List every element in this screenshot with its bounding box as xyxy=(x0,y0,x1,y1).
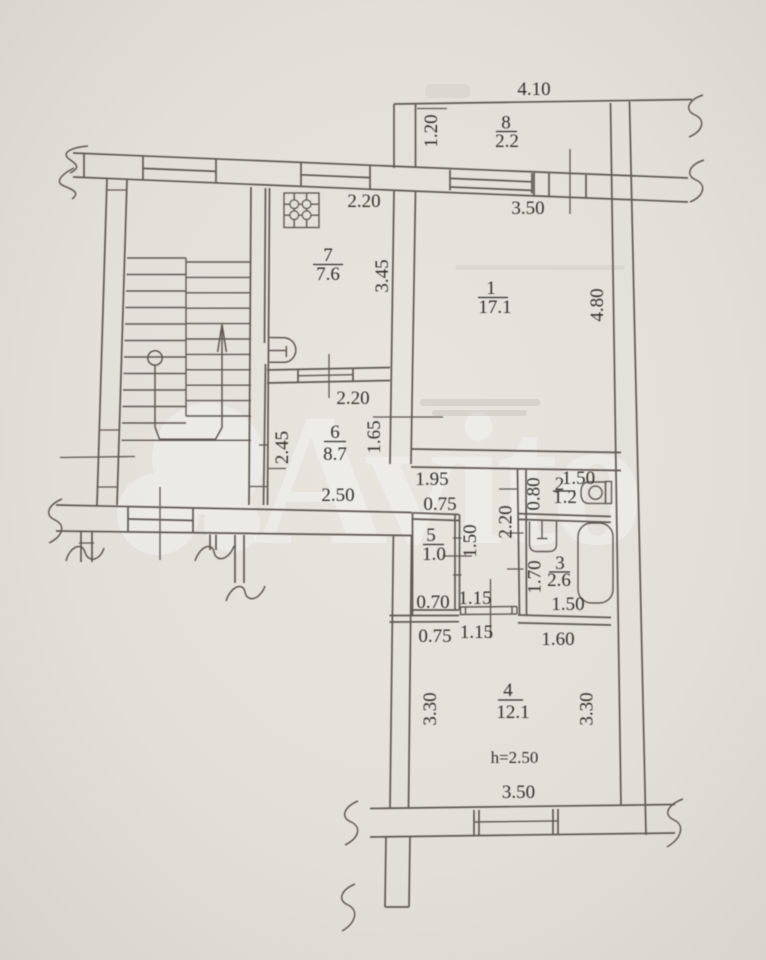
svg-text:7: 7 xyxy=(323,245,333,266)
svg-text:0.75: 0.75 xyxy=(423,494,456,515)
svg-text:1.50: 1.50 xyxy=(460,524,481,557)
svg-text:3.45: 3.45 xyxy=(372,259,393,292)
svg-text:2.45: 2.45 xyxy=(272,431,293,464)
svg-text:1.0: 1.0 xyxy=(422,544,446,565)
svg-text:h=2.50: h=2.50 xyxy=(491,748,539,767)
svg-text:1.15: 1.15 xyxy=(460,622,493,643)
svg-text:0.70: 0.70 xyxy=(416,592,449,613)
svg-text:1.15: 1.15 xyxy=(458,588,491,609)
svg-text:1.65: 1.65 xyxy=(364,420,385,453)
svg-text:4.80: 4.80 xyxy=(587,288,608,321)
svg-text:3.50: 3.50 xyxy=(502,782,535,803)
svg-text:17.1: 17.1 xyxy=(478,297,511,318)
svg-text:2.20: 2.20 xyxy=(496,505,517,538)
svg-text:2.2: 2.2 xyxy=(495,131,519,152)
svg-text:3.30: 3.30 xyxy=(577,692,598,725)
svg-text:0.75: 0.75 xyxy=(418,626,451,647)
svg-text:2.20: 2.20 xyxy=(336,388,369,409)
svg-text:0.80: 0.80 xyxy=(524,477,545,510)
svg-text:2.20: 2.20 xyxy=(347,191,380,212)
svg-text:2.50: 2.50 xyxy=(321,485,354,506)
svg-text:1.60: 1.60 xyxy=(541,629,574,650)
svg-text:5: 5 xyxy=(426,525,436,546)
svg-text:8.7: 8.7 xyxy=(323,444,347,465)
svg-text:1.2: 1.2 xyxy=(553,487,577,508)
svg-text:3.30: 3.30 xyxy=(420,692,441,725)
svg-text:2.6: 2.6 xyxy=(547,570,571,591)
svg-text:1.95: 1.95 xyxy=(415,469,448,490)
svg-text:1.50: 1.50 xyxy=(562,468,595,489)
svg-text:12.1: 12.1 xyxy=(496,702,529,723)
svg-text:1.70: 1.70 xyxy=(525,560,546,593)
svg-text:1: 1 xyxy=(486,278,496,299)
svg-text:6: 6 xyxy=(330,422,340,443)
svg-text:4: 4 xyxy=(503,680,513,701)
svg-text:4.10: 4.10 xyxy=(517,79,550,100)
svg-text:7.6: 7.6 xyxy=(316,264,340,285)
svg-text:1.20: 1.20 xyxy=(421,114,442,147)
svg-text:3.50: 3.50 xyxy=(511,198,544,219)
svg-text:1.50: 1.50 xyxy=(551,594,584,615)
